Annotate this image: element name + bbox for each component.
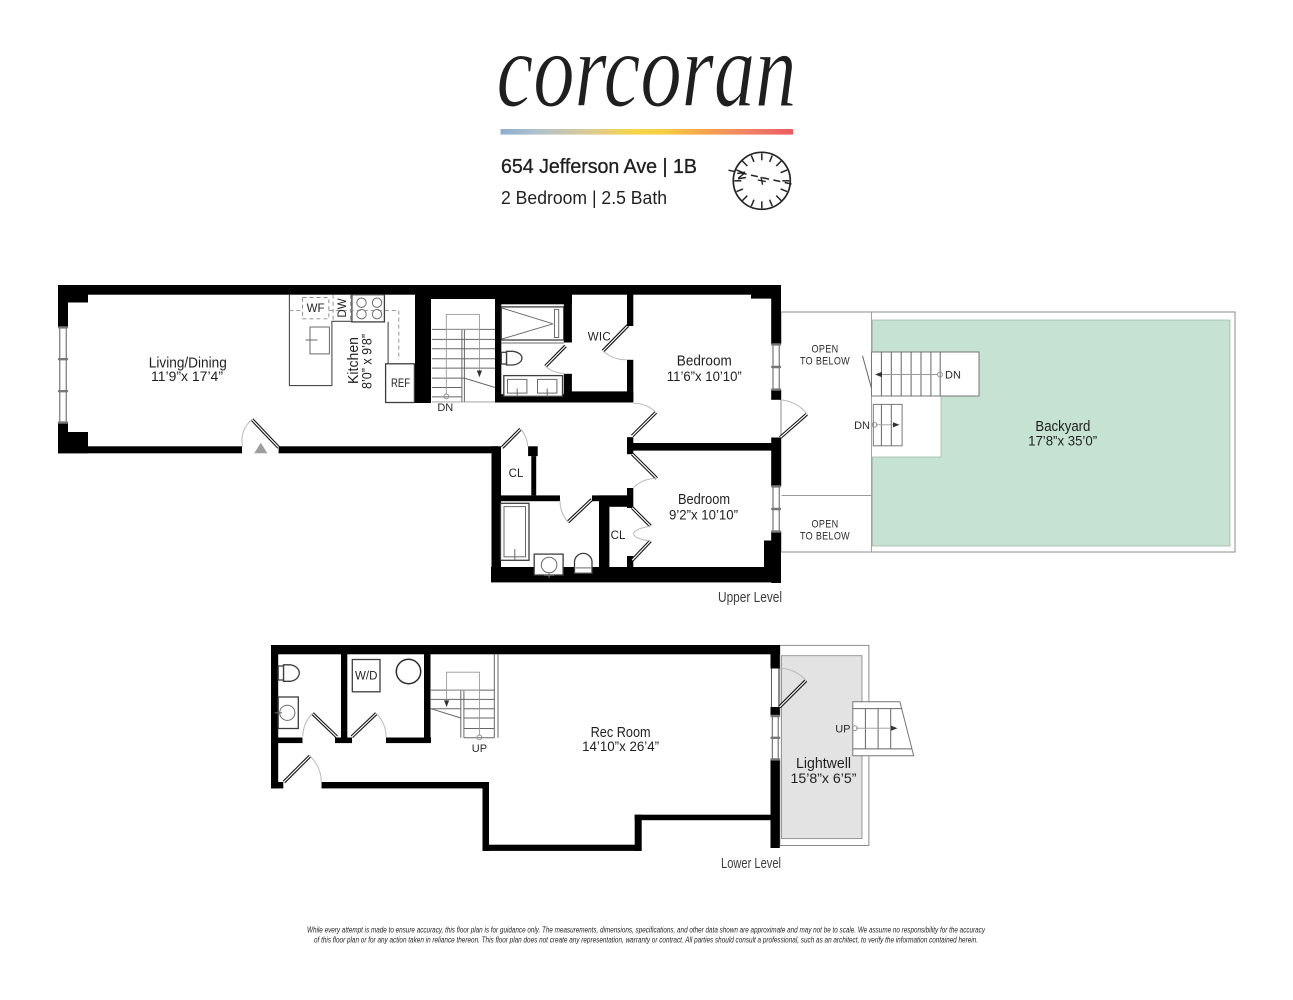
svg-text:W/D: W/D (355, 671, 377, 683)
svg-text:WF: WF (307, 303, 325, 315)
svg-text:Upper Level: Upper Level (718, 589, 782, 606)
svg-text:654 Jefferson Ave | 1B: 654 Jefferson Ave | 1B (501, 155, 697, 178)
svg-text:UP: UP (835, 724, 850, 736)
svg-text:15’8”x 6’5”: 15’8”x 6’5” (791, 770, 857, 786)
svg-text:11’6”x 10’10”: 11’6”x 10’10” (667, 368, 742, 384)
svg-text:Lower Level: Lower Level (721, 855, 781, 872)
svg-text:CL: CL (509, 468, 524, 480)
svg-text:OPEN: OPEN (812, 519, 839, 531)
svg-text:DN: DN (854, 420, 870, 432)
svg-text:17’8”x 35’0”: 17’8”x 35’0” (1028, 433, 1097, 449)
svg-text:CL: CL (611, 530, 626, 542)
svg-text:11’9”x 17’4”: 11’9”x 17’4” (151, 368, 223, 384)
svg-text:9’2”x 10’10”: 9’2”x 10’10” (669, 507, 738, 523)
svg-text:OPEN: OPEN (812, 344, 839, 356)
svg-text:Bedroom: Bedroom (678, 491, 730, 508)
svg-text:WIC: WIC (588, 332, 611, 344)
svg-text:While every attempt is made to: While every attempt is made to ensure ac… (307, 926, 986, 935)
svg-text:Bedroom: Bedroom (677, 352, 732, 369)
svg-text:UP: UP (472, 743, 487, 755)
svg-text:of this floor plan or for any: of this floor plan or for any action tak… (314, 936, 978, 945)
svg-text:8’0” x 9’8”: 8’0” x 9’8” (359, 334, 375, 389)
svg-text:DN: DN (945, 370, 961, 382)
svg-text:corcoran: corcoran (497, 12, 797, 130)
svg-text:DW: DW (337, 298, 349, 317)
svg-text:TO BELOW: TO BELOW (800, 531, 850, 543)
svg-text:REF: REF (391, 378, 410, 390)
svg-text:TO BELOW: TO BELOW (800, 356, 850, 368)
svg-text:14’10”x 26’4”: 14’10”x 26’4” (582, 738, 659, 754)
svg-text:2 Bedroom | 2.5 Bath: 2 Bedroom | 2.5 Bath (501, 187, 667, 208)
svg-text:DN: DN (437, 402, 453, 414)
